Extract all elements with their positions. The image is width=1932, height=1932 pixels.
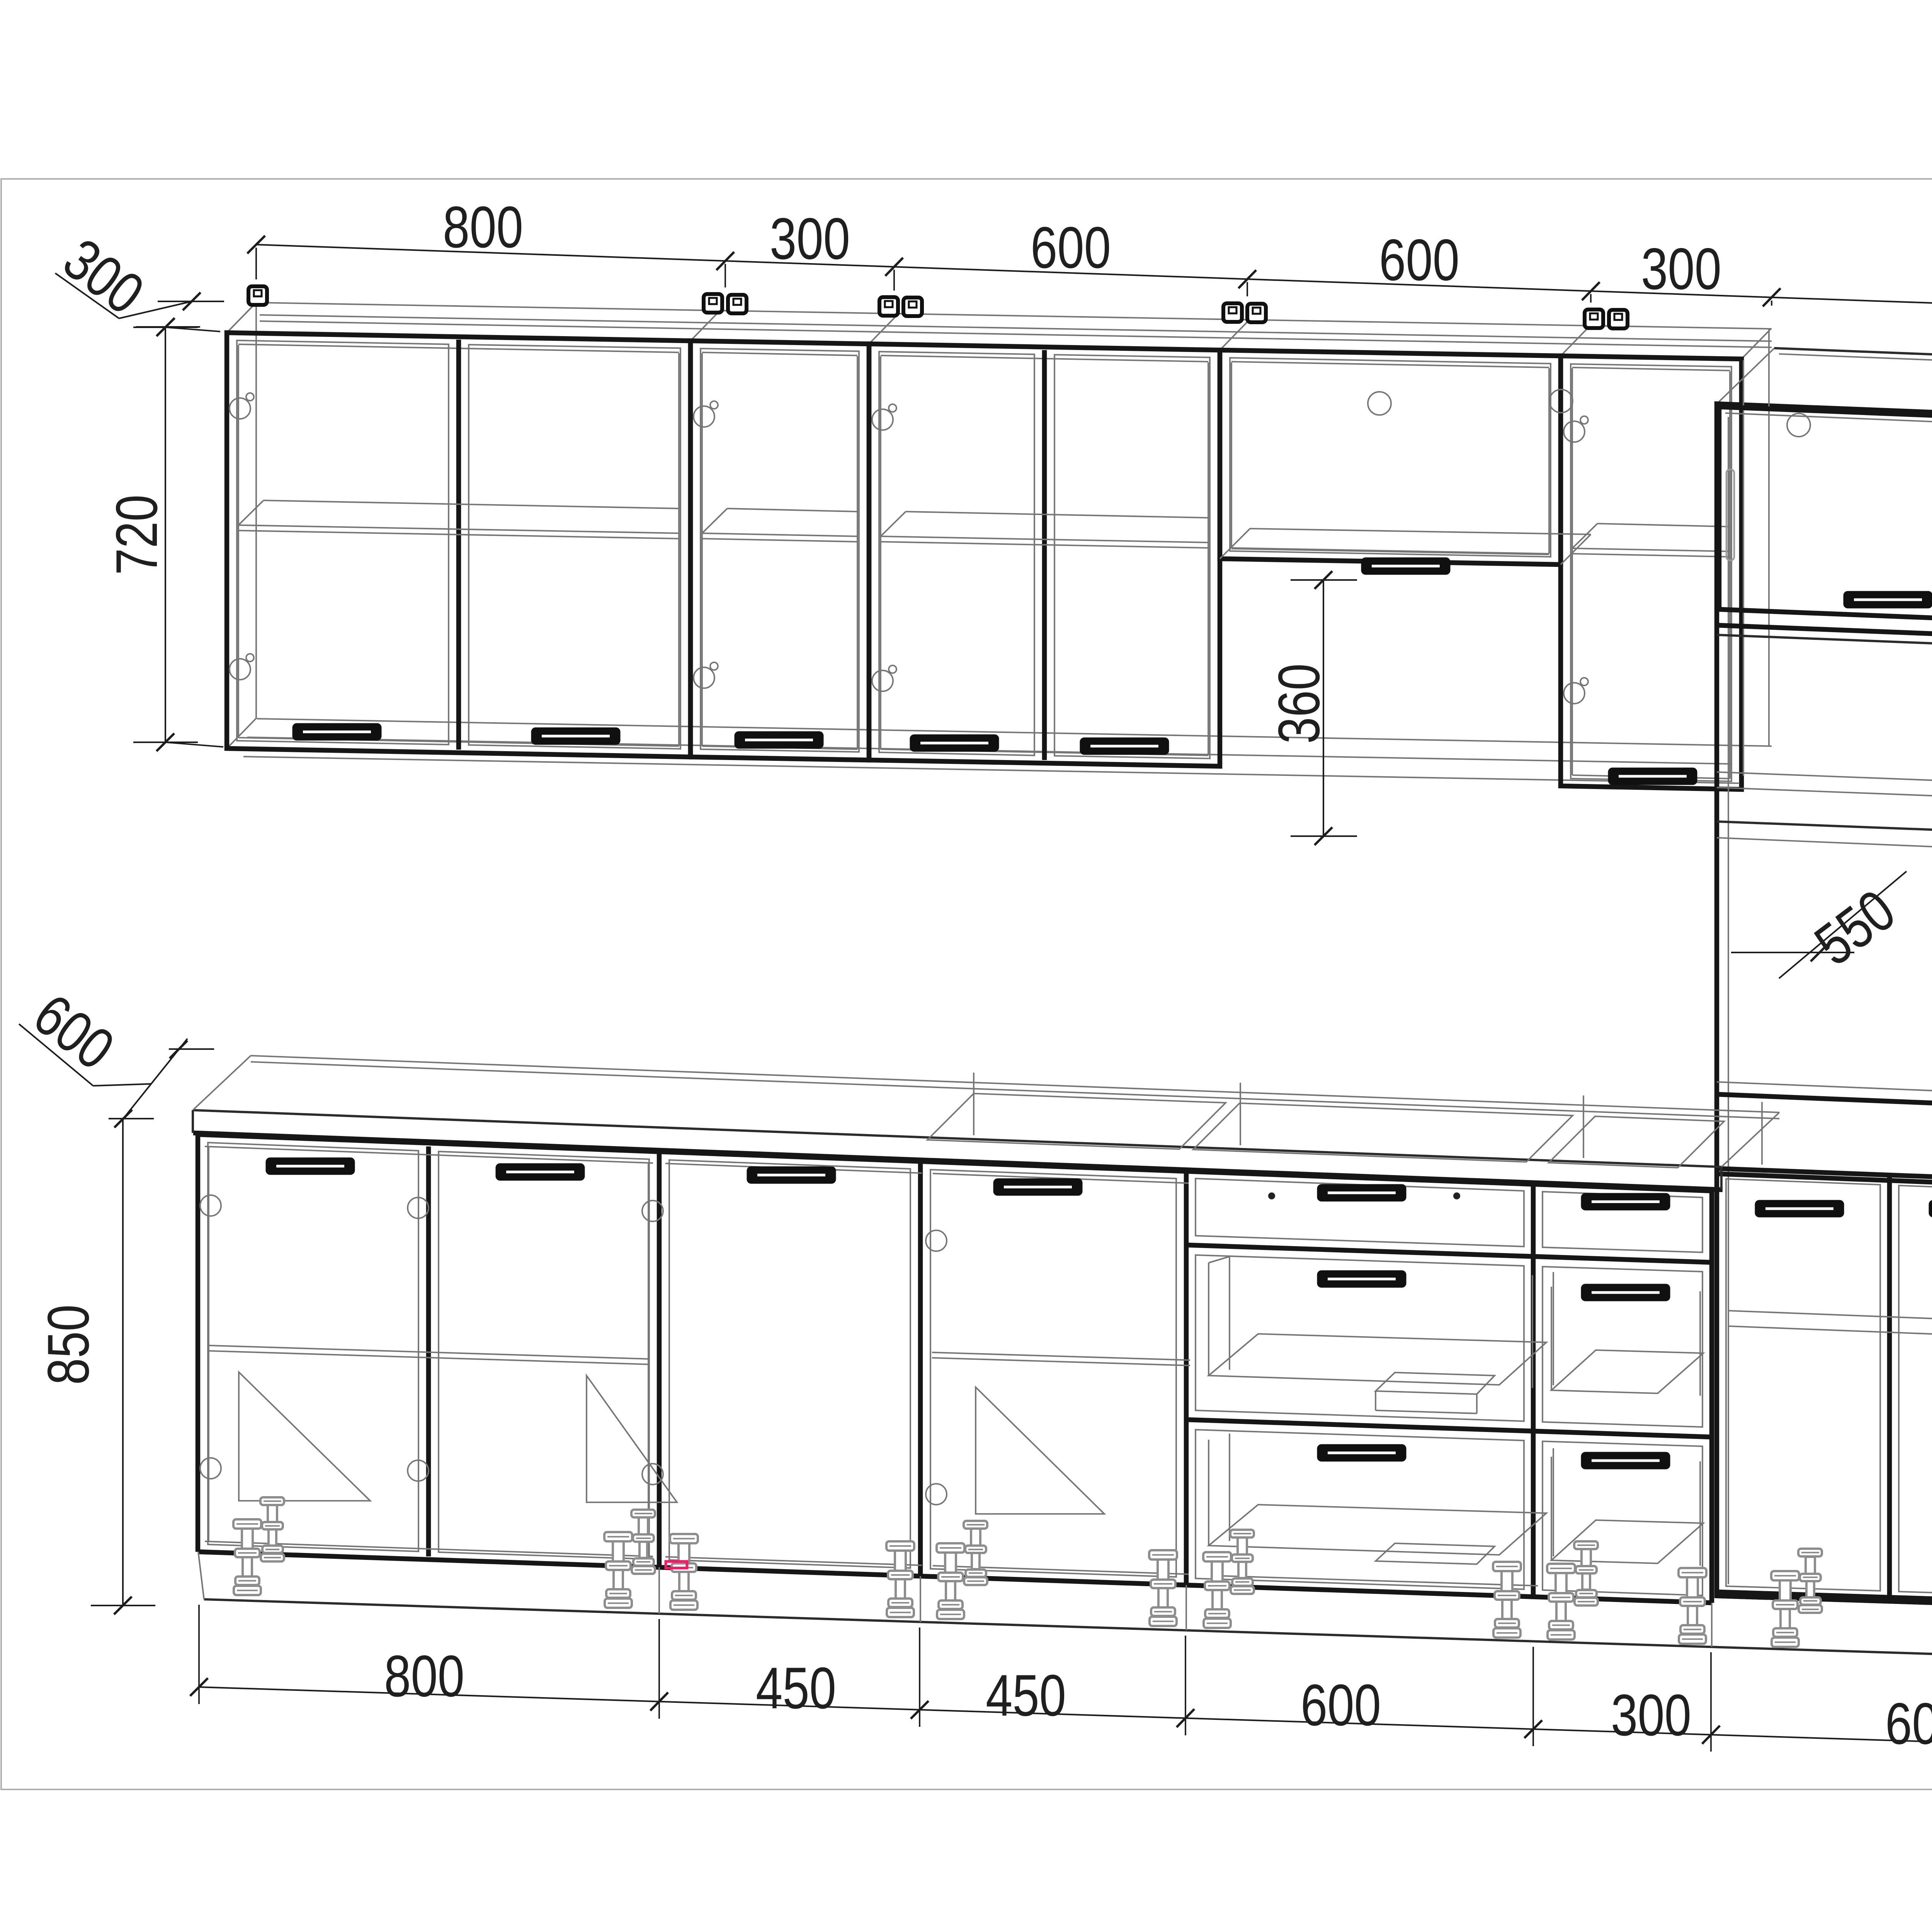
- svg-text:300: 300: [1641, 236, 1721, 302]
- svg-text:600: 600: [1885, 1691, 1932, 1757]
- svg-text:360: 360: [1266, 663, 1332, 744]
- svg-text:300: 300: [770, 206, 850, 272]
- svg-text:720: 720: [104, 495, 170, 575]
- svg-text:600: 600: [1301, 1672, 1381, 1738]
- svg-text:850: 850: [36, 1304, 101, 1385]
- svg-text:450: 450: [756, 1655, 836, 1721]
- svg-text:800: 800: [384, 1643, 464, 1709]
- svg-text:300: 300: [1611, 1682, 1691, 1748]
- svg-text:450: 450: [986, 1663, 1066, 1728]
- svg-text:600: 600: [1379, 227, 1459, 293]
- svg-text:600: 600: [1930, 247, 1932, 312]
- svg-text:800: 800: [443, 194, 523, 260]
- svg-text:600: 600: [1031, 215, 1111, 281]
